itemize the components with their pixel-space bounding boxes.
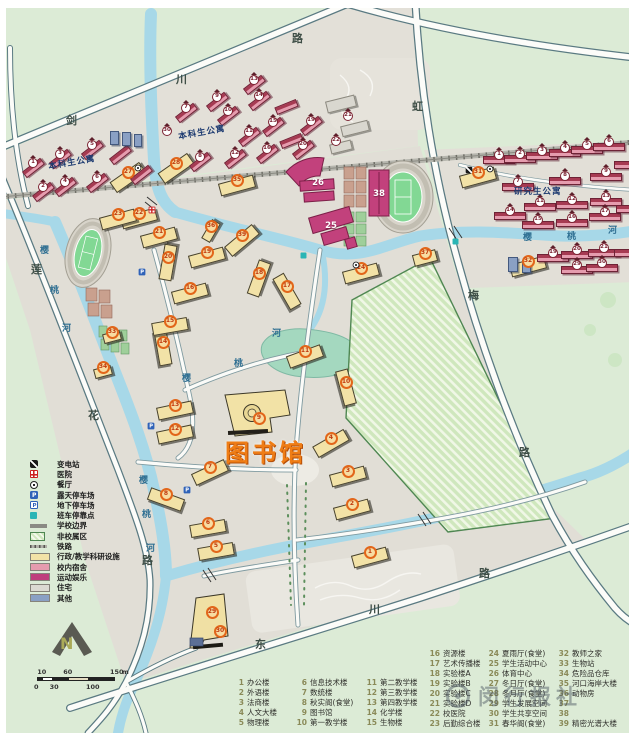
frame-left [0,0,6,733]
watermark-text: 闵行报社 [478,681,582,711]
watermark: 闵行报社 [446,681,582,711]
watermark-logo-icon [446,684,470,708]
frame-top [0,0,635,8]
frame-right [629,0,635,733]
map-base [0,0,635,733]
campus-map: 1234567891011121314151617181920212223242… [0,0,635,733]
